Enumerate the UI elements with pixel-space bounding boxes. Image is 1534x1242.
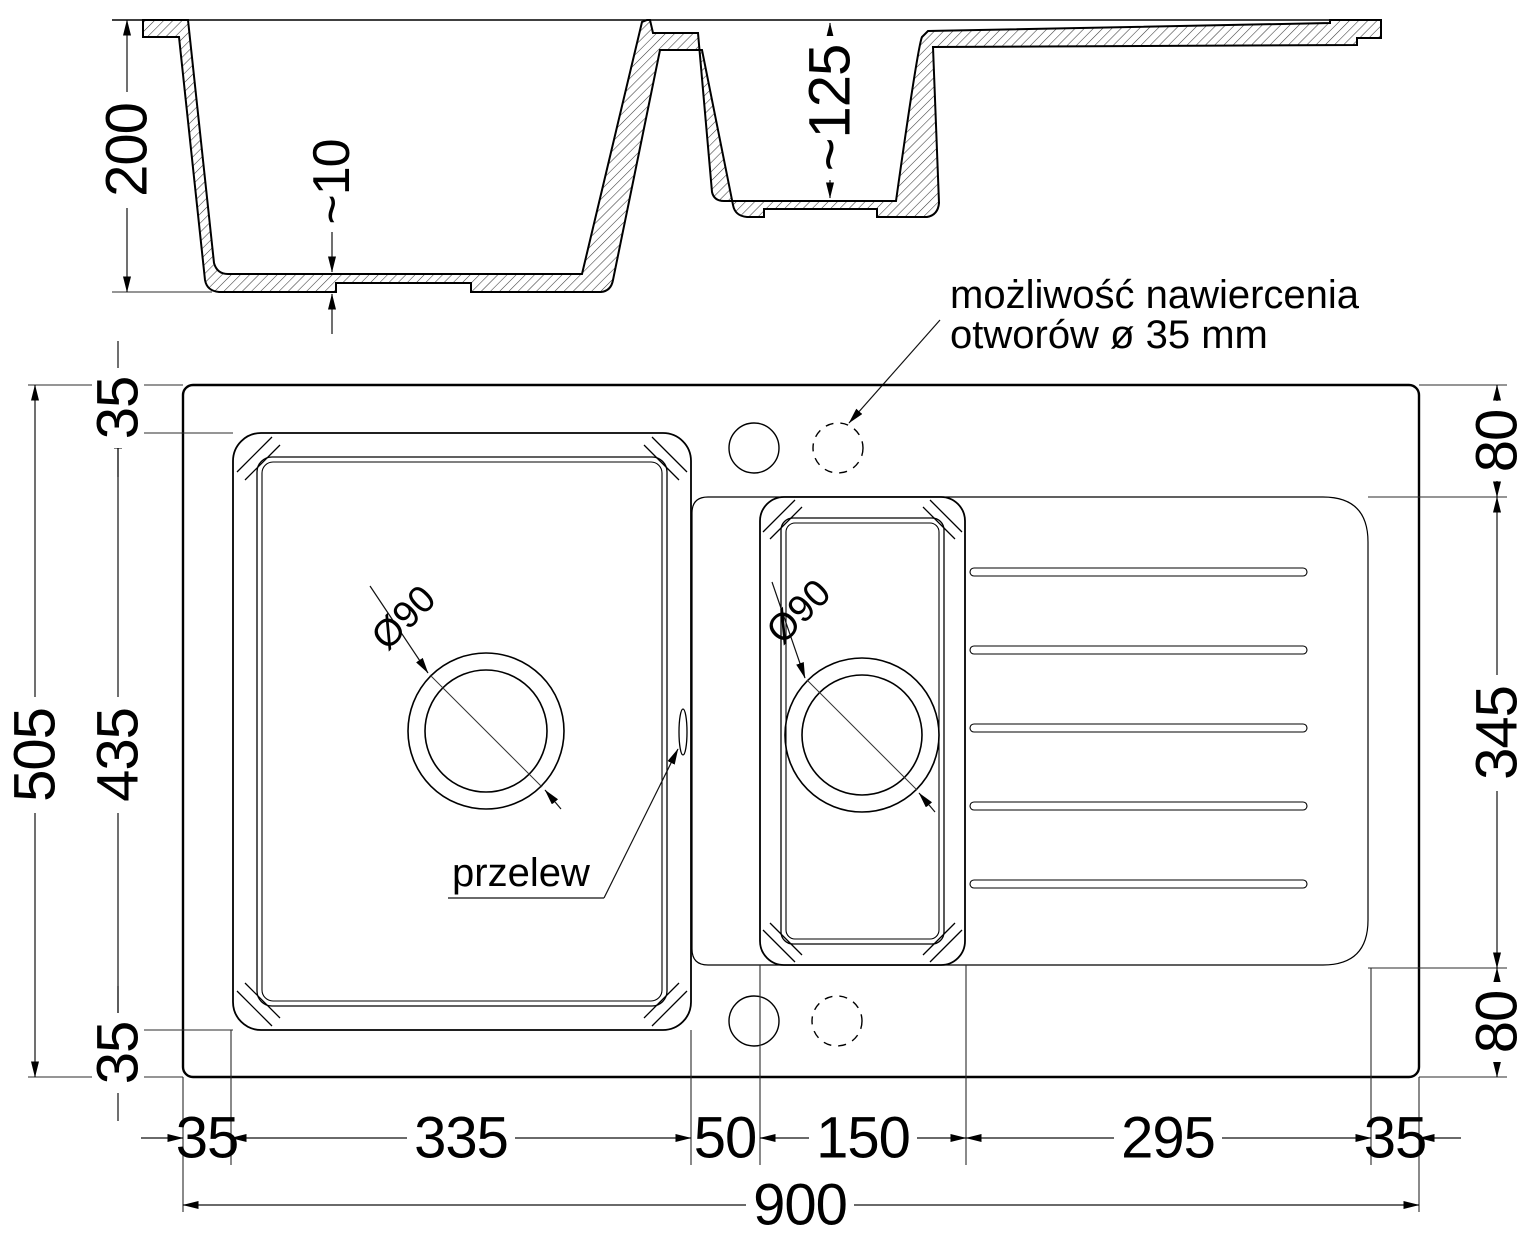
dim-bottom-left-margin-label: 35	[176, 1106, 239, 1171]
annotation-line1: możliwość nawiercenia	[950, 273, 1360, 317]
drainer-groove	[970, 724, 1307, 732]
drainer-groove	[970, 646, 1307, 654]
dim-small-bowl-width-label: 150	[816, 1106, 910, 1171]
dim-total-height-label: 505	[3, 708, 68, 802]
plan-view: Ø90 przelew	[183, 385, 1419, 1077]
overflow-slot	[679, 709, 687, 755]
dim-bottom-right-margin-label: 35	[1364, 1106, 1427, 1171]
dim-left-top-margin-label: 35	[86, 377, 151, 440]
dim-bottom-chain: 35 335 50 150 295 35	[141, 1106, 1461, 1171]
dim-right-bottom-margin-label: 80	[1465, 991, 1530, 1054]
dim-total-width-label: 900	[753, 1173, 847, 1238]
drainer-groove	[970, 802, 1307, 810]
dim-bowl-height-label: 435	[86, 708, 151, 802]
faucet-hole-top	[729, 423, 779, 473]
dim-depth-small-label: ~125	[798, 45, 863, 172]
dim-depth-main: 200	[95, 20, 160, 292]
dim-total-width: 900	[183, 1173, 1419, 1238]
dim-bowl-width-label: 335	[414, 1106, 508, 1171]
dim-depth-small: ~125	[798, 23, 863, 198]
dim-drainer-height-label: 345	[1465, 686, 1530, 780]
optional-hole-top-dashed	[813, 423, 863, 473]
main-bowl: Ø90 przelew	[233, 433, 691, 1030]
optional-hole-bottom-dashed	[812, 996, 862, 1046]
small-bowl: Ø90	[759, 497, 965, 965]
sink-technical-drawing-page: 200 ~10 ~125 możliwość nawiercenia otwor…	[0, 0, 1534, 1242]
dim-right-top-margin: 80	[1465, 385, 1530, 497]
overflow-label: przelew	[452, 851, 590, 895]
dim-divider-gap-label: 50	[694, 1106, 757, 1171]
drainer-grooves	[970, 568, 1307, 888]
dim-total-height: 505	[3, 385, 68, 1077]
technical-drawing: 200 ~10 ~125 możliwość nawiercenia otwor…	[0, 0, 1534, 1242]
faucet-hole-bottom	[729, 996, 779, 1046]
dim-right-top-margin-label: 80	[1465, 410, 1530, 473]
dim-drainer-height: 345	[1465, 497, 1530, 968]
dim-left-top-margin: 35	[86, 341, 151, 477]
small-bowl-rim	[760, 497, 965, 965]
drainer-groove	[970, 568, 1307, 576]
dim-left-bottom-margin-label: 35	[86, 1022, 151, 1085]
dim-bowl-height: 435	[86, 433, 151, 1030]
annotation-line2: otworów ø 35 mm	[950, 313, 1268, 357]
main-bowl-rim	[233, 433, 691, 1030]
annotation-leader-arrow	[849, 320, 940, 423]
dim-bottom-thickness-label: ~10	[303, 139, 361, 224]
dim-drainer-width-label: 295	[1121, 1106, 1215, 1171]
dim-bottom-thickness: ~10	[303, 139, 361, 334]
drill-hole-annotation: możliwość nawiercenia otworów ø 35 mm	[849, 273, 1360, 423]
dim-right-bottom-margin: 80	[1465, 968, 1530, 1077]
dim-left-bottom-margin: 35	[86, 986, 151, 1121]
dim-depth-main-label: 200	[95, 103, 160, 197]
drainer-groove	[970, 880, 1307, 888]
